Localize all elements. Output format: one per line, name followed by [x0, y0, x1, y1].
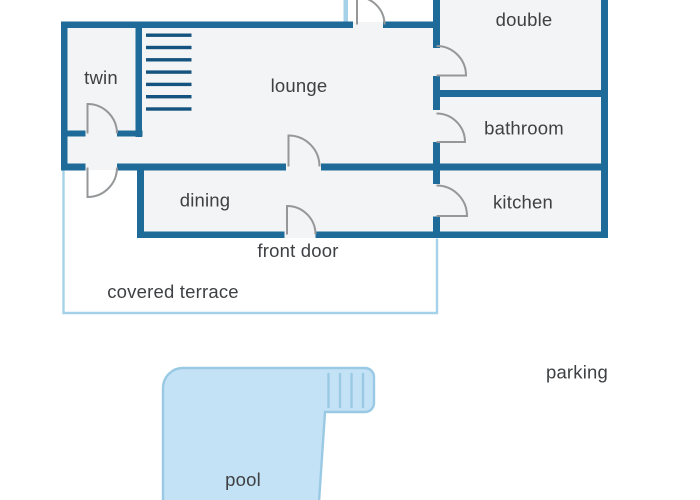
- interior-main-block: [61, 22, 440, 170]
- window-marker: [344, 0, 349, 22]
- bathroom-room-label: bathroom: [484, 118, 564, 139]
- wall-lounge-dining-right: [321, 164, 608, 171]
- stair-step: [146, 70, 192, 73]
- floor-plan-drawing: twin lounge double bathroom kitchen dini…: [0, 0, 700, 500]
- wall-wing-segment-b: [433, 76, 440, 110]
- stair-step: [146, 107, 192, 110]
- terrace-door-arc: [88, 168, 118, 198]
- wall-wing-segment-c: [433, 142, 440, 184]
- wall-top-right: [383, 22, 440, 29]
- wall-twin-bottom-left: [61, 131, 86, 137]
- front-door-label: front door: [257, 240, 338, 261]
- floor-plan-canvas: twin lounge double bathroom kitchen dini…: [0, 0, 700, 500]
- stair-step: [146, 58, 192, 61]
- wall-front-right: [316, 232, 609, 239]
- stair-step: [146, 34, 192, 37]
- wall-dining-left: [137, 170, 144, 238]
- pool-shape-group: [163, 368, 374, 500]
- wall-twin-right: [136, 22, 143, 138]
- wall-lounge-dining-left: [117, 164, 286, 171]
- lounge-room-label: lounge: [271, 75, 328, 96]
- wall-wing-segment-a: [433, 0, 440, 48]
- pool-outline: [163, 368, 374, 500]
- wall-top-left: [61, 22, 353, 29]
- wall-outer-right: [601, 0, 608, 238]
- parking-label: parking: [546, 362, 608, 383]
- covered-terrace-label: covered terrace: [107, 281, 239, 302]
- stair-step: [146, 95, 192, 98]
- wall-hallway-bottom-left: [61, 164, 86, 171]
- pool-label: pool: [225, 469, 261, 490]
- wall-front-left: [137, 232, 285, 239]
- stair-step: [146, 83, 192, 86]
- twin-room-label: twin: [84, 67, 118, 88]
- wall-double-bathroom: [440, 90, 601, 97]
- double-room-label: double: [496, 9, 553, 30]
- wall-wing-segment-d: [433, 217, 440, 239]
- dining-room-label: dining: [180, 190, 231, 211]
- wall-outer-left: [61, 22, 68, 171]
- kitchen-room-label: kitchen: [493, 192, 553, 213]
- stair-step: [146, 46, 192, 49]
- patio-door-arc: [357, 0, 385, 25]
- wall-twin-bottom-right: [117, 131, 143, 137]
